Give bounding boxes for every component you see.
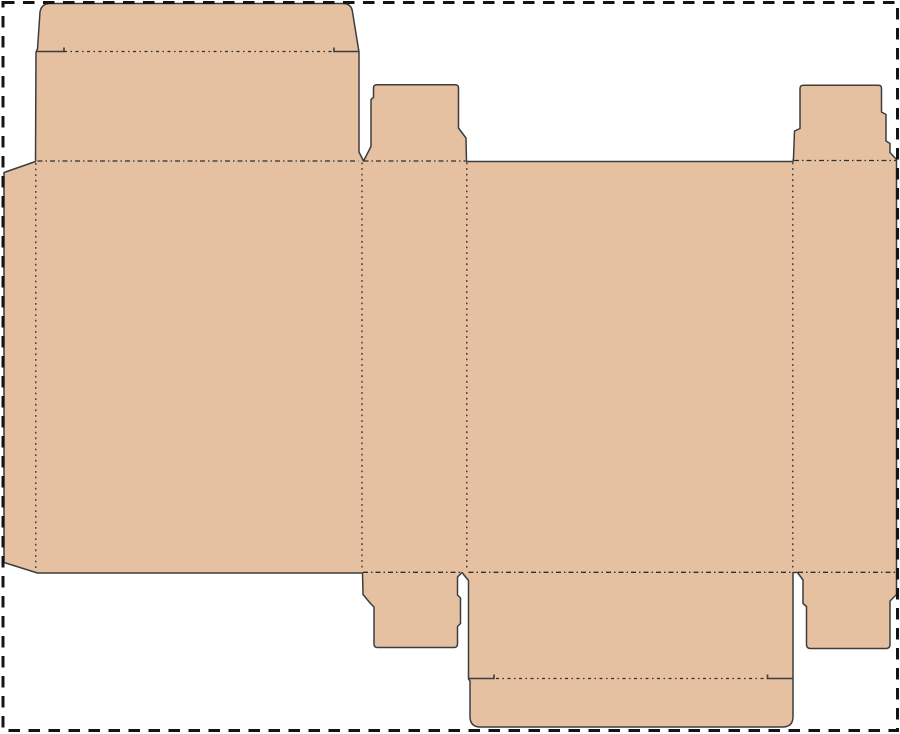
dieline-outline bbox=[4, 4, 897, 728]
dieline-page bbox=[0, 0, 900, 734]
dieline-sheet bbox=[0, 0, 900, 734]
